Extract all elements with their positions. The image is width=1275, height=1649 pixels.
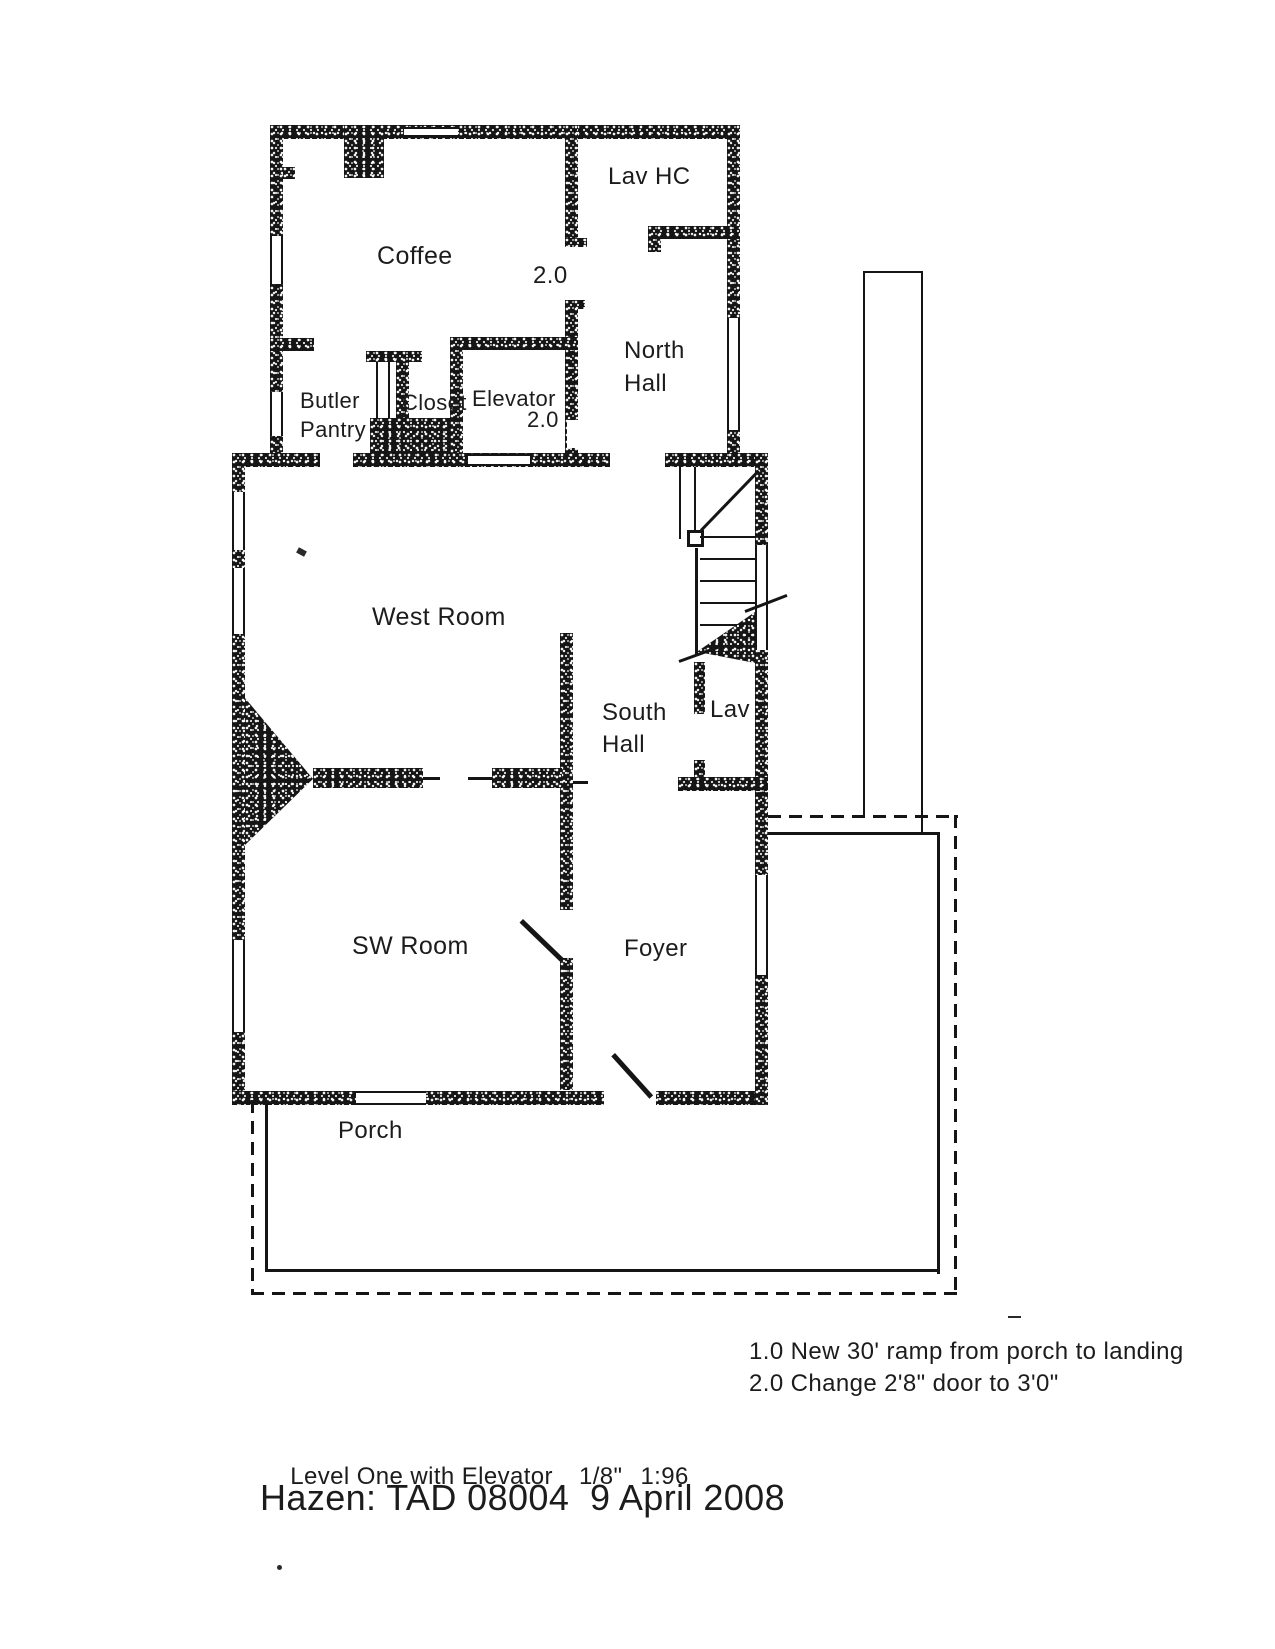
stair-treads (700, 536, 755, 630)
window (232, 492, 245, 550)
wall-elevator-top (450, 337, 578, 350)
window-north-hall-east (727, 318, 740, 430)
window (270, 392, 283, 436)
wall-lavhc-step (648, 226, 661, 252)
room-label-sw-room: SW Room (352, 932, 469, 960)
wall-lavhc-bottom (648, 226, 740, 239)
wall-fireplace-stub (313, 768, 423, 788)
drawing-title: Hazen: TAD 08004 9 April 2008 (260, 1478, 785, 1518)
wall-coffee-east-cap (565, 300, 585, 309)
stray-mark (296, 547, 307, 557)
room-label-north-hall: North Hall (624, 334, 700, 400)
wall-tick (573, 781, 588, 784)
stair-stringer-line (694, 467, 696, 531)
wall-lower-top-a (232, 453, 320, 467)
porch-edge-right (937, 832, 940, 1274)
fireplace-triangle (245, 698, 313, 845)
window (356, 1091, 426, 1105)
door-opening-elevator (567, 420, 578, 448)
wall-lower-bottom (232, 1091, 768, 1105)
keynote-text-2: 2.0 Change 2'8" door to 3'0" (749, 1371, 1059, 1398)
room-label-foyer: Foyer (624, 936, 687, 963)
room-label-coffee: Coffee (377, 242, 453, 270)
wall-coffee-east-upper (565, 125, 578, 247)
wall-lav-west-a (694, 662, 705, 714)
wall-lav-bottom (678, 777, 768, 791)
wall-closet-cap (366, 351, 422, 362)
opening-jamb-line (423, 777, 440, 780)
ramp-boundary-dashed (251, 1100, 254, 1294)
room-label-porch: Porch (338, 1118, 403, 1145)
room-label-butler-pantry: Butler Pantry (300, 386, 374, 444)
new-ramp (863, 271, 923, 817)
landing-edge-top (768, 832, 940, 835)
window (404, 127, 458, 137)
wall-opening-stub (492, 768, 562, 788)
window (755, 545, 768, 650)
keynote-elevator-door: 2.0 (527, 408, 559, 433)
keynote-coffee-door: 2.0 (533, 263, 568, 290)
window (232, 568, 245, 634)
ramp-boundary-dashed (251, 1292, 957, 1295)
chimney-block (344, 125, 384, 178)
wall-coffee-door-head-stub (565, 238, 587, 247)
door-opening-butler (320, 453, 353, 467)
wall-butler-divider (270, 338, 314, 351)
stair-up-break-line (700, 470, 760, 532)
room-label-closet: Closet (402, 391, 467, 416)
door-leaf-sw-room (520, 919, 564, 961)
porch-edge-left (265, 1103, 268, 1271)
ramp-boundary-dashed (954, 815, 957, 1295)
floor-plan-sheet: Lav HC Coffee 2.0 North Hall Butler Pant… (0, 0, 1275, 1649)
stray-mark (1008, 1316, 1021, 1318)
stray-mark (277, 1565, 282, 1570)
opening-jamb-line (468, 777, 492, 780)
window (755, 875, 768, 975)
wall-central (560, 633, 573, 1090)
stair-stringer-line (695, 548, 698, 656)
room-label-west-room: West Room (372, 603, 506, 631)
opening-north-hall-stair (610, 453, 665, 467)
keynote-text-1: 1.0 New 30' ramp from porch to landing (749, 1339, 1184, 1366)
wall-lower-top-c (665, 453, 768, 467)
door-opening-sw-foyer (560, 910, 573, 958)
room-label-lav-hc: Lav HC (608, 164, 690, 191)
wall-upper-top (270, 125, 740, 139)
room-label-south-hall: South Hall (602, 697, 678, 762)
window (270, 236, 283, 284)
window (232, 940, 245, 1032)
porch-edge-bottom (265, 1269, 940, 1272)
stair-stringer-line (679, 467, 681, 539)
wall-tick (283, 167, 295, 179)
room-label-lav: Lav (710, 697, 750, 724)
window (468, 454, 530, 466)
